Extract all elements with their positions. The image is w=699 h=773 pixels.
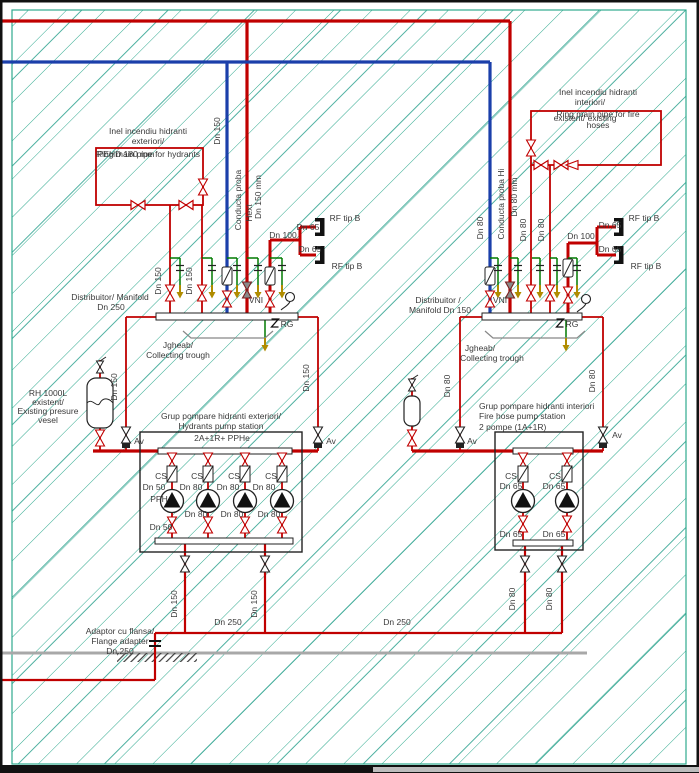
ring-ext-title-en: Ring main pipe for hydrants: [96, 149, 200, 159]
dn50-1: Dn 50: [143, 482, 166, 492]
manifold-right-1: Distribuitor /: [415, 295, 461, 305]
ring-ext-title-ro2: exteriori/: [132, 136, 165, 146]
av-1: Av: [134, 436, 145, 446]
dn100-left: Dn 100: [269, 230, 297, 240]
dn80-riser2: Dn 80: [536, 218, 546, 241]
vessel-4: vesel: [38, 415, 58, 425]
dn150-vessel: Dn 150: [109, 373, 119, 401]
pump-right-title2: Fire hose pump station: [479, 411, 566, 421]
ring-int-2: interiori/: [575, 97, 606, 107]
dn80-6: Dn 80: [258, 509, 281, 519]
dn100-right: Dn 100: [567, 231, 595, 241]
pump-left-title2: Hydrants pump station: [178, 421, 263, 431]
dn80-3: Dn 80: [253, 482, 276, 492]
trough-right-en: Collecting trough: [460, 353, 524, 363]
discharge-header-left-bar: [155, 538, 293, 544]
strainer-icon: [167, 466, 177, 482]
dn65-left-1: Dn 65: [297, 222, 320, 232]
pump-left-title3: 2A+1R+ PPHe: [194, 433, 250, 443]
trough-left-en: Collecting trough: [146, 350, 210, 360]
dn65-p4: Dn 65: [543, 529, 566, 539]
flange-3: Dn 250: [106, 646, 134, 656]
dn80-4: Dn 80: [185, 509, 208, 519]
dn150-riser2: Dn 150: [184, 267, 194, 295]
strainer-icon: [240, 466, 250, 482]
conducta-proba-left: Conducta proba: [233, 169, 243, 230]
manifold-left-1: Distribuitor/ Manifold: [71, 292, 149, 302]
cad-drawing-window: Inel incendiu hidrantiexteriori/PEHD 180…: [0, 0, 699, 773]
pump-left-title1: Grup pompare hidranti exteriori/: [161, 411, 282, 421]
dn250-bottom1: Dn 250: [214, 617, 242, 627]
check-valve-icon: [485, 267, 495, 285]
strainer-icon: [562, 466, 572, 482]
cs-1: CS: [155, 471, 167, 481]
pump-right-title3: 2 pompe (1A+1R): [479, 422, 546, 432]
dn65-left-2: Dn 65: [299, 244, 322, 254]
suction-header-left-bar: [158, 448, 292, 454]
ring-int-5: hoses: [587, 120, 610, 130]
ring-ext-title-ro: Inel incendiu hidranti: [109, 126, 187, 136]
trough-left-ro: Jgheab/: [163, 340, 194, 350]
manifold-left-2: Dn 250: [97, 302, 125, 312]
pph: PPH: [150, 494, 167, 504]
dn80-2: Dn 80: [217, 482, 240, 492]
dn150-blue-left: Dn 150: [212, 117, 222, 145]
strainer-icon: [518, 466, 528, 482]
cs-3: CS: [228, 471, 240, 481]
dn150-bottom1: Dn 150: [169, 590, 179, 618]
dn80-5: Dn 80: [221, 509, 244, 519]
check-valve-icon: [222, 267, 232, 285]
pump-right-title1: Grup pompare hidranti interiori: [479, 401, 594, 411]
vni-left: VNI: [249, 295, 263, 305]
dn50-2: Dn 50: [150, 522, 173, 532]
status-bar-segment[interactable]: [373, 767, 699, 772]
dn80-tank: Dn 80: [442, 374, 452, 397]
discharge-header-right-bar: [513, 540, 573, 546]
cs-4: CS: [265, 471, 277, 481]
flange-2: Flange adapter: [91, 636, 148, 646]
dn150mm-left: Dn 150 mm: [253, 175, 263, 219]
av-2: Av: [326, 436, 337, 446]
dn150-riser1: Dn 150: [153, 267, 163, 295]
dn65-p3: Dn 65: [500, 529, 523, 539]
dn65-right-1: Dn 65: [599, 220, 622, 230]
conducta-proba-right: Conducta proba Hi: [496, 168, 506, 239]
trough-right-ro: Jgheab/: [465, 343, 496, 353]
piping-schematic: Inel incendiu hidrantiexteriori/PEHD 180…: [0, 0, 699, 773]
av-3: Av: [467, 436, 478, 446]
dn80-blue-right: Dn 80: [475, 216, 485, 239]
cs-6: CS: [549, 471, 561, 481]
strainer-icon: [277, 466, 287, 482]
dn80-right-drop: Dn 80: [587, 369, 597, 392]
dn80-riser1: Dn 80: [518, 218, 528, 241]
frame-top: [0, 0, 699, 3]
rf-left-2: RF tip B: [332, 261, 363, 271]
rf-right-1: RF tip B: [629, 213, 660, 223]
dn250-bottom2: Dn 250: [383, 617, 411, 627]
vni-right: VNI: [493, 295, 507, 305]
dn65-p1: Dn 65: [500, 481, 523, 491]
pump-icon: [556, 490, 579, 513]
expansion-tank: [404, 396, 420, 426]
check-valve-icon: [563, 259, 573, 277]
flange-1: Adaptor cu flansa/: [86, 626, 155, 636]
rg-left: RG: [281, 319, 294, 329]
cs-5: CS: [505, 471, 517, 481]
av-4: Av: [612, 430, 623, 440]
rf-left-1: RF tip B: [330, 213, 361, 223]
dn80mm-right: Dn 80 mm: [509, 177, 519, 216]
ring-int-1: Inel incendiu hidranti: [559, 87, 637, 97]
strainer-icon: [203, 466, 213, 482]
cs-2: CS: [191, 471, 203, 481]
rg-right: RG: [566, 319, 579, 329]
dn150-right-drop: Dn 150: [301, 364, 311, 392]
check-valve-icon: [265, 267, 275, 285]
dn150-bottom2: Dn 150: [249, 590, 259, 618]
rf-right-2: RF tip B: [631, 261, 662, 271]
dn80-bottom2: Dn 80: [544, 587, 554, 610]
dn80-bottom1: Dn 80: [507, 587, 517, 610]
dn80-1: Dn 80: [180, 482, 203, 492]
dn65-right-2: Dn 65: [599, 244, 622, 254]
dn65-p2: Dn 65: [543, 481, 566, 491]
manifold-right-2: Manifold Dn 150: [409, 305, 471, 315]
frame-left: [0, 0, 3, 773]
pump-icon: [512, 490, 535, 513]
